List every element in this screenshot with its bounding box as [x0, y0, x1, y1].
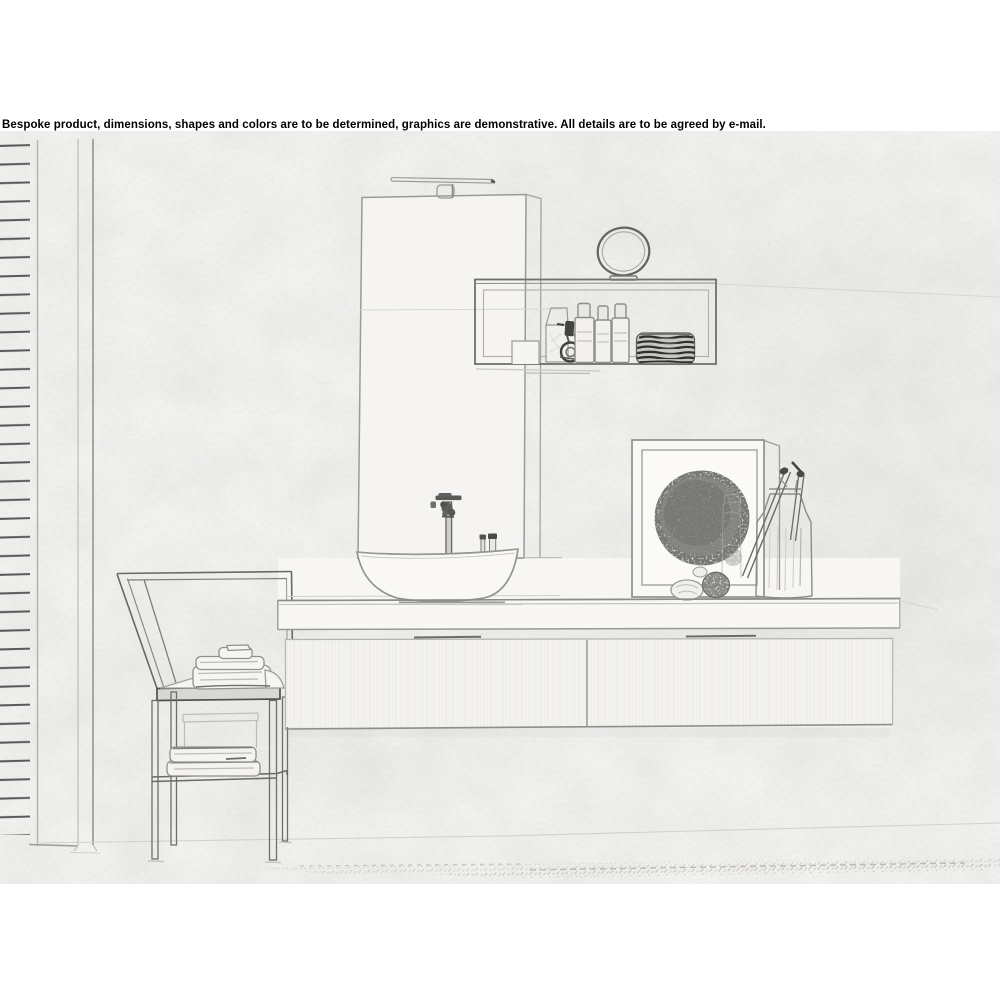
svg-text:Bespoke product, dimensions, s: Bespoke product, dimensions, shapes and …: [2, 119, 766, 131]
